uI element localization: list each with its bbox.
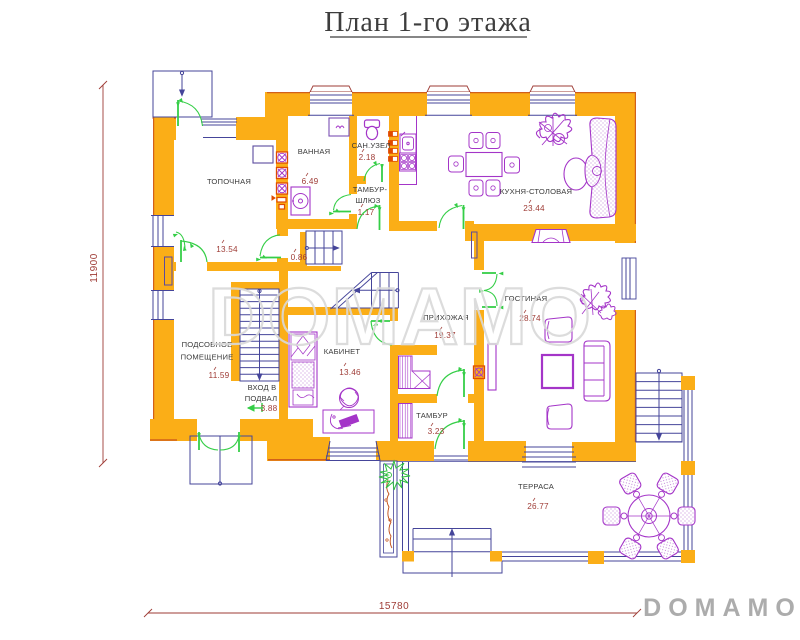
svg-text:КУХНЯ-СТОЛОВАЯ: КУХНЯ-СТОЛОВАЯ xyxy=(500,187,572,196)
svg-text:ПОДВАЛ: ПОДВАЛ xyxy=(245,394,278,403)
svg-text:ВАННАЯ: ВАННАЯ xyxy=(298,147,331,156)
svg-text:2.18: 2.18 xyxy=(359,153,376,162)
svg-text:План 1-го этажа: План 1-го этажа xyxy=(324,7,532,38)
svg-text:1.17: 1.17 xyxy=(358,208,375,217)
svg-text:13.46: 13.46 xyxy=(339,368,361,377)
svg-text:ВХОД В: ВХОД В xyxy=(248,383,277,392)
svg-text:15780: 15780 xyxy=(379,601,409,612)
svg-text:DOMAMO: DOMAMO xyxy=(643,594,800,622)
svg-text:6.49: 6.49 xyxy=(302,177,319,186)
svg-text:23.44: 23.44 xyxy=(523,204,545,213)
svg-text:САН.УЗЕЛ: САН.УЗЕЛ xyxy=(352,141,391,150)
svg-text:26.77: 26.77 xyxy=(527,502,549,511)
svg-text:ТЕРРАСА: ТЕРРАСА xyxy=(518,482,555,491)
svg-text:3.88: 3.88 xyxy=(261,404,278,413)
svg-text:13.54: 13.54 xyxy=(216,245,238,254)
svg-text:0.86: 0.86 xyxy=(291,253,308,262)
svg-text:11.59: 11.59 xyxy=(209,371,230,380)
svg-text:DOMAMO: DOMAMO xyxy=(208,272,592,362)
svg-text:3.23: 3.23 xyxy=(428,427,445,436)
svg-text:ТОПОЧНАЯ: ТОПОЧНАЯ xyxy=(207,177,251,186)
svg-text:ТАМБУР-: ТАМБУР- xyxy=(353,185,388,194)
svg-text:11900: 11900 xyxy=(89,253,100,283)
svg-text:ШЛЮЗ: ШЛЮЗ xyxy=(355,196,380,205)
svg-text:ТАМБУР: ТАМБУР xyxy=(416,411,448,420)
